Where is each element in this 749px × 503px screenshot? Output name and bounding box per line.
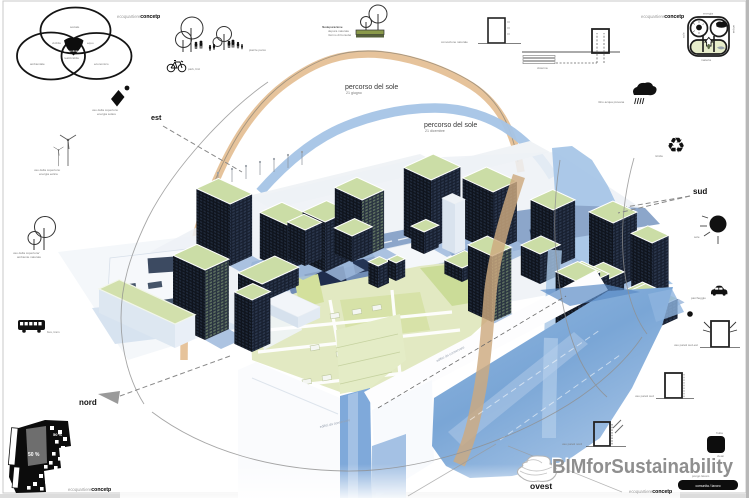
svg-text:frutta: frutta: [716, 431, 723, 435]
svg-text:ambientale: ambientale: [30, 62, 45, 66]
svg-text:percorso del sole: percorso del sole: [424, 122, 477, 129]
svg-text:materia: materia: [701, 58, 711, 62]
svg-text:realizzabile: realizzabile: [64, 56, 79, 60]
svg-text:bus, tram: bus, tram: [47, 330, 60, 334]
svg-text:equo: equo: [87, 41, 94, 45]
svg-text:ricicla: ricicla: [655, 154, 663, 158]
svg-text:est: est: [151, 113, 162, 122]
svg-text:economico: economico: [94, 62, 109, 66]
svg-text:uso pareti sud: uso pareti sud: [635, 394, 654, 398]
svg-text:park, bici: park, bici: [188, 67, 200, 71]
svg-text:energia: energia: [703, 12, 713, 16]
svg-text:sole: sole: [682, 32, 686, 38]
svg-text:♻: ♻: [667, 135, 686, 158]
svg-text:ritorno di bonudei: ritorno di bonudei: [328, 33, 352, 37]
svg-text:uso pareti sud-est: uso pareti sud-est: [674, 343, 698, 347]
svg-text:sud: sud: [693, 187, 707, 196]
svg-text:sole: sole: [694, 235, 700, 239]
svg-text:21 dicembre: 21 dicembre: [425, 129, 445, 133]
svg-text:piazze parco: piazze parco: [249, 48, 266, 52]
svg-text:convezione naturale: convezione naturale: [441, 40, 468, 44]
svg-text:ambiente naturale: ambiente naturale: [17, 255, 41, 259]
svg-text:BIMforSustainability: BIMforSustainability: [552, 455, 734, 478]
svg-text:ovest: ovest: [530, 481, 552, 491]
svg-text:50 %: 50 %: [53, 432, 63, 437]
svg-text:sostenibile: sostenibile: [64, 49, 79, 53]
svg-text:acqua: acqua: [732, 25, 736, 34]
svg-text:50 %: 50 %: [28, 452, 40, 458]
svg-text:vivibile: vivibile: [52, 41, 61, 45]
svg-text:comunita / lavoro: comunita / lavoro: [695, 484, 720, 488]
svg-text:energia solare: energia solare: [97, 112, 116, 116]
svg-text:nord: nord: [79, 398, 97, 407]
svg-text:parcheggio: parcheggio: [691, 296, 706, 300]
svg-text:percorso del sole: percorso del sole: [345, 84, 398, 91]
svg-text:21 giugno: 21 giugno: [346, 91, 362, 95]
svg-text:uso pareti nord: uso pareti nord: [562, 442, 582, 446]
svg-text:sociale: sociale: [70, 25, 80, 29]
svg-text:cisterna: cisterna: [537, 66, 548, 70]
svg-text:ritiro acqua piovana: ritiro acqua piovana: [598, 100, 625, 104]
svg-text:energia eolica: energia eolica: [39, 172, 58, 176]
